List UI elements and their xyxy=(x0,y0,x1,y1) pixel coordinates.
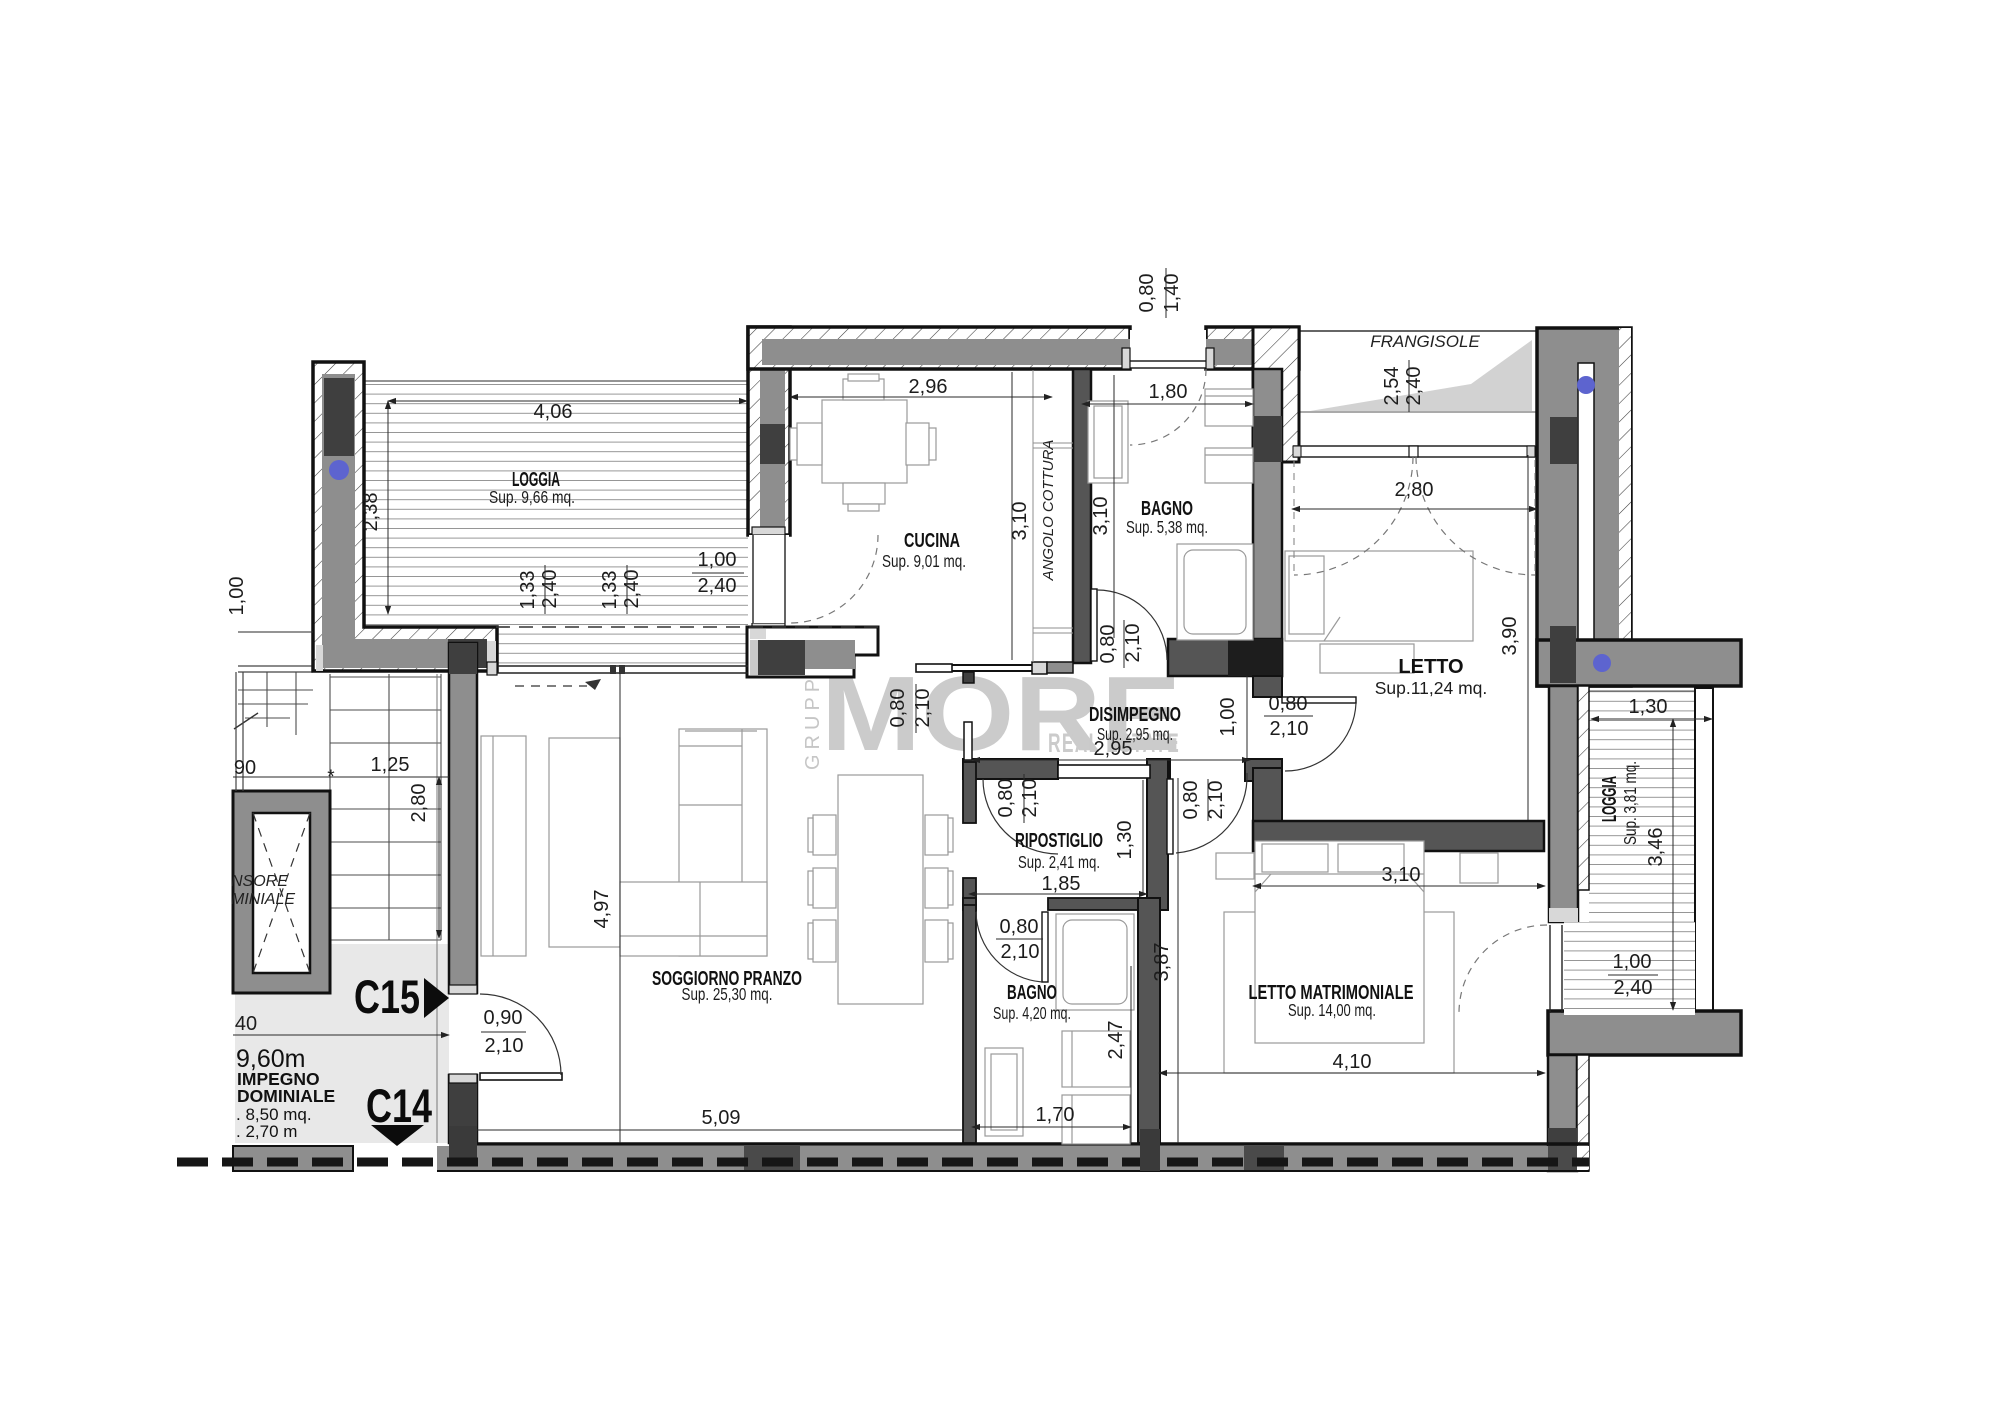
svg-text:1,30: 1,30 xyxy=(1629,696,1668,718)
svg-text:4,10: 4,10 xyxy=(1333,1051,1372,1073)
svg-text:40: 40 xyxy=(235,1013,257,1035)
svg-text:0,80: 0,80 xyxy=(1000,916,1039,938)
svg-text:2,40: 2,40 xyxy=(698,575,737,597)
svg-text:2,10: 2,10 xyxy=(1019,779,1041,818)
svg-text:2,80: 2,80 xyxy=(408,784,430,823)
svg-text:3,10: 3,10 xyxy=(1090,497,1112,536)
svg-text:4,97: 4,97 xyxy=(591,890,613,929)
svg-text:2,96: 2,96 xyxy=(909,376,948,398)
svg-text:1,33: 1,33 xyxy=(517,571,539,610)
svg-text:2,40: 2,40 xyxy=(539,570,561,609)
svg-text:1,25: 1,25 xyxy=(371,754,410,776)
svg-text:1,33: 1,33 xyxy=(599,571,621,610)
svg-text:2,10: 2,10 xyxy=(1122,624,1144,663)
svg-text:0,80: 0,80 xyxy=(1097,625,1119,664)
svg-text:C14: C14 xyxy=(366,1079,432,1132)
svg-text:RIPOSTIGLIO: RIPOSTIGLIO xyxy=(1015,830,1103,852)
svg-text:Sup. 14,00 mq.: Sup. 14,00 mq. xyxy=(1288,1000,1376,1020)
svg-text:Sup. 9,01 mq.: Sup. 9,01 mq. xyxy=(882,551,966,571)
svg-text:0,80: 0,80 xyxy=(1180,781,1202,820)
svg-text:2,10: 2,10 xyxy=(1205,781,1227,820)
svg-text:2,10: 2,10 xyxy=(1270,718,1309,740)
svg-text:1,00: 1,00 xyxy=(1217,698,1239,737)
svg-text:DOMINIALE: DOMINIALE xyxy=(237,1086,335,1106)
svg-text:1,00: 1,00 xyxy=(1613,951,1652,973)
svg-text:1,80: 1,80 xyxy=(1149,381,1188,403)
svg-text:1,00: 1,00 xyxy=(698,549,737,571)
svg-text:3,90: 3,90 xyxy=(1499,617,1521,656)
svg-text:2,10: 2,10 xyxy=(912,689,934,728)
svg-text:BAGNO: BAGNO xyxy=(1007,982,1057,1004)
svg-text:2,10: 2,10 xyxy=(1001,941,1040,963)
svg-text:0,90: 0,90 xyxy=(484,1007,523,1029)
svg-text:1,30: 1,30 xyxy=(1114,821,1136,860)
svg-text:CUCINA: CUCINA xyxy=(904,530,960,552)
svg-text:NSORE: NSORE xyxy=(231,873,288,890)
svg-text:Sup. 3,81 mq.: Sup. 3,81 mq. xyxy=(1620,761,1640,845)
svg-text:2,40: 2,40 xyxy=(1614,977,1653,999)
svg-text:Sup.11,24 mq.: Sup.11,24 mq. xyxy=(1375,678,1488,698)
svg-text:3,46: 3,46 xyxy=(1645,828,1667,867)
svg-text:1,00: 1,00 xyxy=(226,577,248,616)
svg-text:0,80: 0,80 xyxy=(1136,274,1158,313)
svg-text:2,40: 2,40 xyxy=(621,570,643,609)
svg-text:C15: C15 xyxy=(354,970,420,1023)
svg-text:2,40: 2,40 xyxy=(1403,367,1425,406)
svg-text:4,06: 4,06 xyxy=(534,401,573,423)
svg-text:2,47: 2,47 xyxy=(1105,1021,1127,1060)
svg-text:2,80: 2,80 xyxy=(1395,479,1434,501)
svg-text:Sup. 25,30 mq.: Sup. 25,30 mq. xyxy=(682,984,773,1004)
svg-text:DISIMPEGNO: DISIMPEGNO xyxy=(1089,704,1181,726)
svg-text:*: * xyxy=(327,767,335,788)
svg-text:2,10: 2,10 xyxy=(485,1035,524,1057)
svg-text:1,40: 1,40 xyxy=(1161,274,1183,313)
svg-text:MINIALE: MINIALE xyxy=(231,891,295,908)
svg-text:2,54: 2,54 xyxy=(1381,367,1403,406)
svg-text:2,38: 2,38 xyxy=(360,493,382,532)
svg-text:3,10: 3,10 xyxy=(1382,864,1421,886)
svg-text:LOGGIA: LOGGIA xyxy=(1599,776,1621,822)
svg-text:Sup. 4,20 mq.: Sup. 4,20 mq. xyxy=(993,1003,1071,1023)
svg-text:1,85: 1,85 xyxy=(1042,873,1081,895)
svg-text:LETTO: LETTO xyxy=(1398,656,1463,678)
svg-text:Sup. 2,41 mq.: Sup. 2,41 mq. xyxy=(1018,852,1100,872)
svg-text:0,80: 0,80 xyxy=(995,779,1017,818)
svg-text:Sup. 5,38 mq.: Sup. 5,38 mq. xyxy=(1126,517,1208,537)
svg-text:0,80: 0,80 xyxy=(887,689,909,728)
svg-text:3,10: 3,10 xyxy=(1009,502,1031,541)
svg-text:3,87: 3,87 xyxy=(1151,943,1173,982)
svg-text:2,95: 2,95 xyxy=(1094,738,1133,760)
svg-text:1,70: 1,70 xyxy=(1036,1104,1075,1126)
svg-text:0,80: 0,80 xyxy=(1269,693,1308,715)
svg-text:FRANGISOLE: FRANGISOLE xyxy=(1370,332,1480,351)
svg-text:90: 90 xyxy=(234,757,256,779)
svg-text:Sup. 9,66 mq.: Sup. 9,66 mq. xyxy=(489,487,575,507)
svg-text:ANGOLO COTTURA: ANGOLO COTTURA xyxy=(1040,440,1057,582)
svg-text:5,09: 5,09 xyxy=(702,1107,741,1129)
svg-text:. 2,70 m: . 2,70 m xyxy=(236,1122,297,1141)
